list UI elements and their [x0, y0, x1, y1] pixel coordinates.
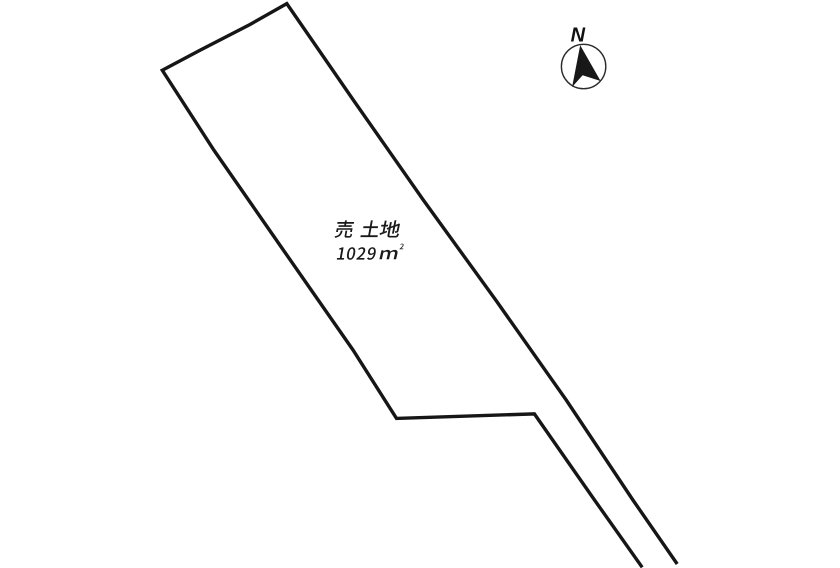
svg-text:N: N [571, 25, 586, 47]
